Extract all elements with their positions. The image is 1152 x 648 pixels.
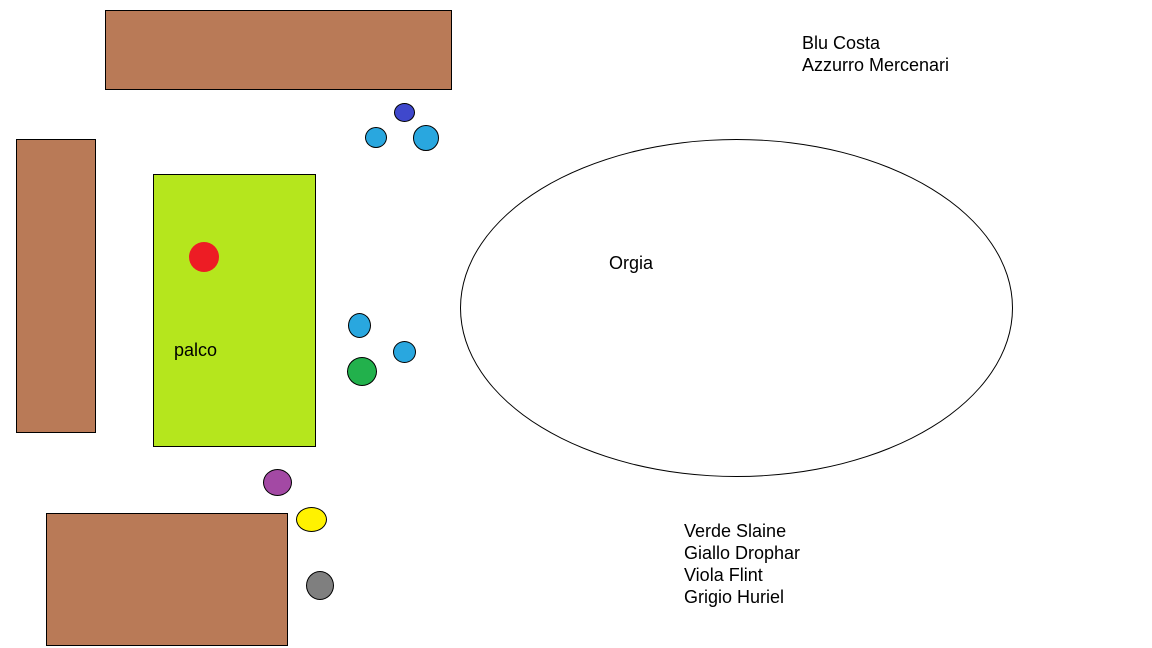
orgia-zone-label: Orgia	[609, 252, 653, 274]
legend-blue-team: Blu Costa Azzurro Mercenari	[802, 32, 949, 76]
legend-line: Azzurro Mercenari	[802, 54, 949, 76]
stage-rect: palco	[153, 174, 316, 447]
legend-line: Blu Costa	[802, 32, 949, 54]
red-marker	[189, 242, 219, 272]
legend-line: Verde Slaine	[684, 520, 800, 542]
yellow-marker	[296, 507, 327, 532]
paint-canvas: palco Orgia Blu Costa Azzurro Mercenari …	[0, 0, 1152, 648]
azure-marker-4	[393, 341, 416, 363]
orgia-zone-ellipse: Orgia	[460, 139, 1013, 477]
purple-marker	[263, 469, 292, 496]
table-left	[16, 139, 96, 433]
legend-line: Giallo Drophar	[684, 542, 800, 564]
legend-line: Viola Flint	[684, 564, 800, 586]
legend-other-teams: Verde Slaine Giallo Drophar Viola Flint …	[684, 520, 800, 608]
table-bottom-left	[46, 513, 288, 646]
stage-label: palco	[174, 339, 217, 361]
green-marker	[347, 357, 377, 386]
azure-marker-1	[365, 127, 387, 148]
azure-marker-2	[413, 125, 439, 151]
gray-marker	[306, 571, 334, 600]
indigo-marker	[394, 103, 415, 122]
table-top	[105, 10, 452, 90]
legend-line: Grigio Huriel	[684, 586, 800, 608]
azure-marker-3	[348, 313, 371, 338]
